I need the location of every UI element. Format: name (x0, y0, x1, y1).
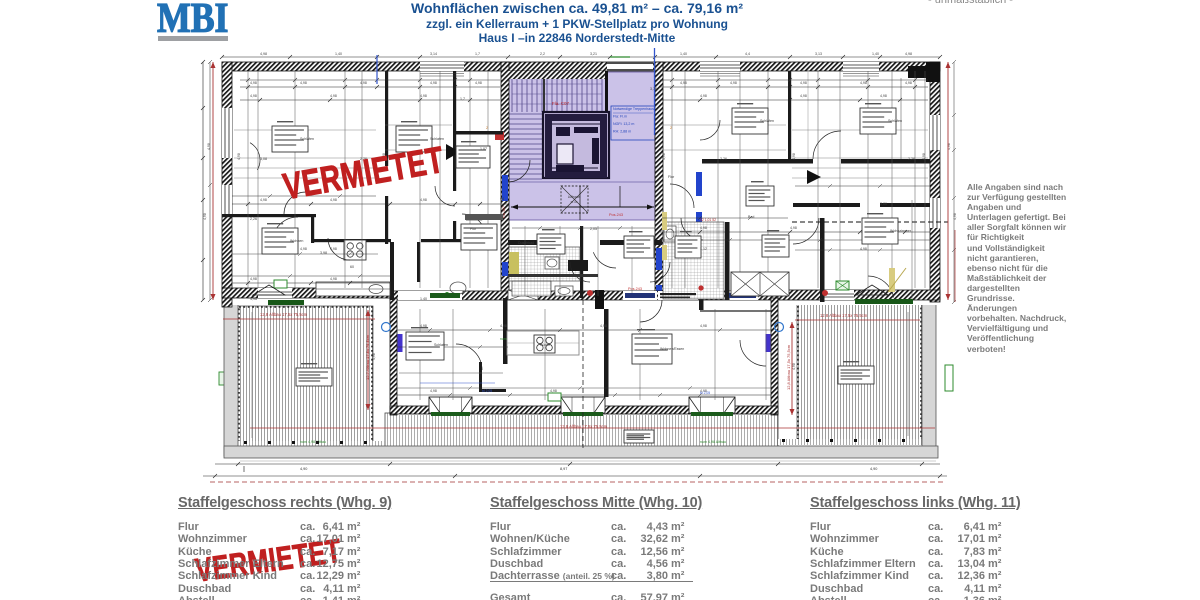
svg-text:4,98: 4,98 (300, 81, 307, 85)
svg-text:bl 2,05: bl 2,05 (700, 391, 710, 395)
svg-text:8,97: 8,97 (560, 467, 567, 471)
svg-text:4,98: 4,98 (790, 226, 797, 230)
svg-text:4,98: 4,98 (250, 81, 257, 85)
svg-text:2,2: 2,2 (540, 52, 545, 56)
svg-text:4,98: 4,98 (600, 324, 607, 328)
svg-text:4,98: 4,98 (372, 353, 376, 360)
svg-text:4,98: 4,98 (330, 277, 337, 281)
svg-text:Luftraum: Luftraum (568, 195, 581, 199)
svg-text:Schlafen: Schlafen (300, 137, 314, 141)
svg-text:4,98: 4,98 (500, 324, 507, 328)
svg-text:3,14: 3,14 (430, 52, 437, 56)
svg-text:4,98: 4,98 (300, 247, 307, 251)
svg-text:4,98: 4,98 (880, 94, 887, 98)
svg-text:3,98: 3,98 (320, 251, 327, 255)
svg-text:Fla: Fl.m: Fla: Fl.m (613, 115, 627, 119)
svg-text:Notwendige Treppenhaus: Notwendige Treppenhaus (613, 107, 654, 111)
svg-text:2,26: 2,26 (908, 157, 915, 161)
svg-text:NGFl: 13,2 m: NGFl: 13,2 m (613, 122, 634, 126)
svg-text:2,05: 2,05 (590, 227, 597, 231)
svg-text:4,98: 4,98 (792, 153, 796, 160)
svg-text:1,07: 1,07 (480, 147, 487, 151)
svg-text:Fl.m²: Fl.m² (571, 200, 578, 204)
svg-text:1,7: 1,7 (460, 97, 465, 101)
svg-text:3,86: 3,86 (880, 202, 887, 206)
svg-text:94: 94 (500, 197, 504, 201)
svg-text:12,8 Altbau 17,5x 75,5cm: 12,8 Altbau 17,5x 75,5cm (786, 344, 791, 390)
svg-text:12,8 Altbau 17,5x 75,5cm: 12,8 Altbau 17,5x 75,5cm (260, 312, 308, 317)
svg-text:Wohnzimmer: Wohnzimmer (890, 229, 912, 233)
svg-text:4,98: 4,98 (870, 297, 877, 301)
svg-text:4,90: 4,90 (300, 467, 307, 471)
svg-text:Wohnen/Essen: Wohnen/Essen (660, 347, 684, 351)
svg-text:4,4: 4,4 (745, 52, 750, 56)
svg-text:RH: 2,88 m: RH: 2,88 m (613, 130, 631, 134)
svg-text:Pos.243: Pos.243 (628, 287, 642, 291)
svg-text:4,98: 4,98 (330, 247, 337, 251)
svg-text:52 1,01 52: 52 1,01 52 (700, 218, 716, 222)
svg-text:1,40: 1,40 (872, 52, 879, 56)
svg-text:12,8 Altbau 17,5x 75,5cm: 12,8 Altbau 17,5x 75,5cm (820, 313, 868, 318)
svg-text:bl 2,05: bl 2,05 (482, 389, 492, 393)
svg-text:num 4,98 Altbau: num 4,98 Altbau (700, 440, 726, 444)
svg-text:Duschbad: Duschbad (518, 241, 534, 245)
svg-text:Schlafen: Schlafen (434, 343, 448, 347)
svg-text:4,98: 4,98 (207, 143, 211, 150)
svg-text:3,13: 3,13 (815, 52, 822, 56)
svg-text:4,98: 4,98 (475, 81, 482, 85)
svg-text:4,98: 4,98 (730, 81, 737, 85)
svg-text:4,98: 4,98 (250, 277, 257, 281)
svg-text:4,98: 4,98 (700, 94, 707, 98)
svg-text:2: 2 (486, 126, 488, 130)
svg-text:1,12: 1,12 (700, 247, 707, 251)
svg-text:4,98: 4,98 (662, 153, 666, 160)
svg-text:60: 60 (350, 265, 354, 269)
svg-text:12,8 Altbau 17,5x 75,5cm: 12,8 Altbau 17,5x 75,5cm (560, 424, 608, 429)
svg-text:12,7 Altbau 17,5x 75,5cm: 12,7 Altbau 17,5x 75,5cm (365, 334, 370, 380)
svg-text:4,98: 4,98 (237, 153, 241, 160)
svg-text:4,98: 4,98 (250, 94, 257, 98)
svg-text:Pos.243: Pos.243 (609, 213, 623, 217)
svg-text:Bad: Bad (748, 215, 754, 219)
svg-text:num: num (500, 337, 507, 341)
svg-text:4,98: 4,98 (260, 198, 267, 202)
svg-text:4,98: 4,98 (203, 213, 207, 220)
svg-text:4,98: 4,98 (800, 81, 807, 85)
svg-text:4,98: 4,98 (260, 52, 267, 56)
svg-text:Küche: Küche (540, 343, 550, 347)
svg-text:4,98: 4,98 (420, 198, 427, 202)
svg-text:1,40: 1,40 (420, 297, 427, 301)
svg-text:3,74: 3,74 (650, 87, 657, 91)
svg-text:1,40: 1,40 (760, 297, 767, 301)
svg-text:4,98: 4,98 (430, 81, 437, 85)
svg-text:2,26: 2,26 (250, 217, 257, 221)
svg-text:Fla. C07: Fla. C07 (552, 101, 570, 106)
svg-text:1,7: 1,7 (475, 52, 480, 56)
svg-text:4,98: 4,98 (860, 247, 867, 251)
svg-text:2: 2 (670, 126, 672, 130)
svg-text:1,40: 1,40 (335, 52, 342, 56)
svg-text:Schlafen: Schlafen (888, 119, 902, 123)
svg-text:4,98: 4,98 (860, 81, 867, 85)
svg-text:Flur: Flur (470, 227, 477, 231)
svg-text:4,98: 4,98 (360, 81, 367, 85)
svg-text:2,26: 2,26 (720, 157, 727, 161)
svg-text:1,40: 1,40 (680, 52, 687, 56)
svg-text:4,98: 4,98 (550, 389, 557, 393)
svg-text:4,98: 4,98 (953, 213, 957, 220)
svg-text:4,98: 4,98 (420, 94, 427, 98)
svg-text:4,98: 4,98 (250, 297, 257, 301)
svg-text:4,98: 4,98 (922, 153, 926, 160)
svg-text:3,21: 3,21 (590, 52, 597, 56)
svg-text:4,98: 4,98 (905, 81, 912, 85)
svg-text:4,98: 4,98 (700, 226, 707, 230)
svg-text:Flur: Flur (668, 175, 675, 179)
svg-text:3,08: 3,08 (260, 157, 267, 161)
svg-text:num 4,98 Altbau: num 4,98 Altbau (300, 440, 326, 444)
svg-text:Wohnen: Wohnen (290, 239, 303, 243)
svg-text:4,98: 4,98 (330, 94, 337, 98)
svg-text:4,98: 4,98 (905, 52, 912, 56)
svg-text:4,98: 4,98 (800, 94, 807, 98)
svg-text:4,90: 4,90 (870, 467, 877, 471)
svg-text:4,98: 4,98 (792, 363, 796, 370)
svg-text:4,98: 4,98 (700, 324, 707, 328)
svg-text:4,98: 4,98 (680, 81, 687, 85)
svg-text:4,98: 4,98 (430, 389, 437, 393)
svg-text:Schlafen: Schlafen (760, 119, 774, 123)
